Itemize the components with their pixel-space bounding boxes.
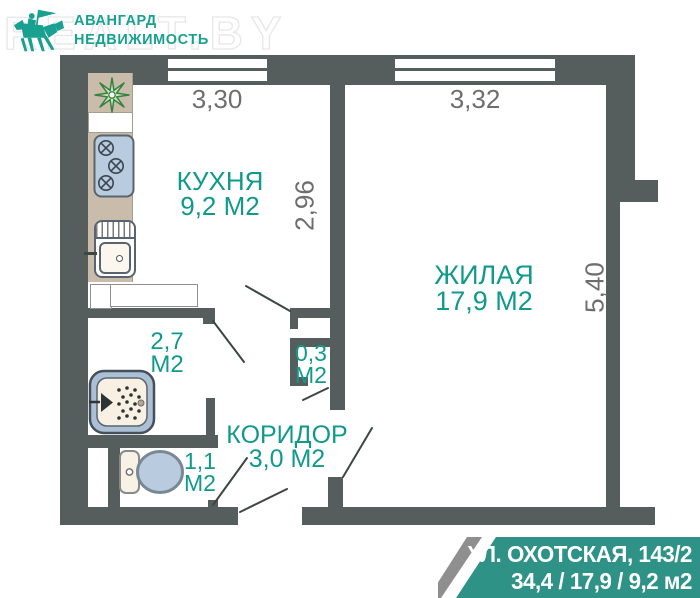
bathroom-label: 2,7 М2 bbox=[132, 331, 202, 377]
wall-bottom-left bbox=[60, 507, 238, 525]
dim-living-depth: 5,40 bbox=[580, 248, 611, 328]
corridor-door-hinge-stub bbox=[290, 318, 298, 329]
wall-right-upper bbox=[606, 55, 635, 202]
sink-drain bbox=[116, 255, 123, 262]
kitchen-door-swing bbox=[246, 286, 290, 311]
living-name: ЖИЛАЯ bbox=[398, 263, 570, 289]
entry-door-stub bbox=[208, 500, 218, 507]
toilet-label: 1,1 М2 bbox=[168, 451, 232, 495]
sink-icon bbox=[94, 220, 136, 278]
banner-areas: 34,4 / 17,9 / 9,2 м2 bbox=[468, 568, 692, 595]
bathtub-icon bbox=[88, 369, 156, 435]
dim-kitchen-depth: 2,96 bbox=[290, 166, 321, 246]
entry-door-swing bbox=[240, 489, 287, 512]
wall-left bbox=[60, 55, 88, 525]
banner-address: УЛ. ОХОТСКАЯ, 143/2 bbox=[468, 541, 692, 568]
address-banner: УЛ. ОХОТСКАЯ, 143/2 34,4 / 17,9 / 9,2 м2 bbox=[438, 537, 700, 598]
agency-name-line1: АВАНГАРД bbox=[74, 13, 157, 29]
agency-logo: АВАНГАРД НЕДВИЖИМОСТЬ bbox=[12, 8, 209, 54]
floorplan-canvas: REALT.BY АВА bbox=[0, 0, 700, 598]
wall-bottom-right bbox=[302, 507, 655, 525]
wall-right-fin bbox=[635, 180, 658, 202]
wall-kitchen-bottom bbox=[88, 308, 215, 318]
vent-flower-icon bbox=[92, 76, 132, 114]
living-window bbox=[395, 59, 555, 81]
closet-unit: М2 bbox=[288, 365, 334, 387]
sink-bowl bbox=[99, 242, 131, 274]
wall-bath-bottom bbox=[88, 435, 218, 448]
kitchen-door-hinge-stub bbox=[203, 318, 215, 324]
sink-faucet bbox=[84, 252, 97, 255]
horse-flag-icon bbox=[12, 8, 66, 54]
living-label: ЖИЛАЯ 17,9 М2 bbox=[398, 263, 570, 314]
stove-icon bbox=[93, 134, 135, 198]
kitchen-furniture-small bbox=[90, 284, 112, 309]
kitchen-area: 9,2 М2 bbox=[145, 194, 295, 219]
dim-living-width: 3,32 bbox=[435, 84, 515, 115]
bathroom-door-swing bbox=[213, 321, 244, 362]
living-door-stub bbox=[328, 477, 343, 510]
closet-door-swing bbox=[303, 388, 328, 400]
kitchen-window bbox=[168, 59, 267, 81]
sink-drainboard bbox=[96, 222, 134, 239]
corridor-area: 3,0 М2 bbox=[217, 448, 357, 472]
kitchen-counter-segment bbox=[88, 112, 133, 133]
wall-bath-right bbox=[206, 398, 215, 438]
dim-kitchen-width: 3,30 bbox=[177, 84, 257, 115]
agency-name: АВАНГАРД НЕДВИЖИМОСТЬ bbox=[74, 12, 209, 50]
closet-label: 0,3 М2 bbox=[288, 343, 334, 387]
kitchen-furniture-large bbox=[110, 284, 198, 307]
bathroom-unit: М2 bbox=[132, 354, 202, 377]
agency-name-line2: НЕДВИЖИМОСТЬ bbox=[74, 32, 209, 48]
kitchen-label: КУХНЯ 9,2 М2 bbox=[145, 169, 295, 218]
kitchen-name: КУХНЯ bbox=[145, 169, 295, 194]
corridor-label: КОРИДОР 3,0 М2 bbox=[217, 424, 357, 472]
banner-text: УЛ. ОХОТСКАЯ, 143/2 34,4 / 17,9 / 9,2 м2 bbox=[468, 541, 692, 594]
toilet-unit: М2 bbox=[168, 473, 232, 495]
wall-corridor-top bbox=[290, 308, 330, 318]
living-area: 17,9 М2 bbox=[398, 289, 570, 315]
